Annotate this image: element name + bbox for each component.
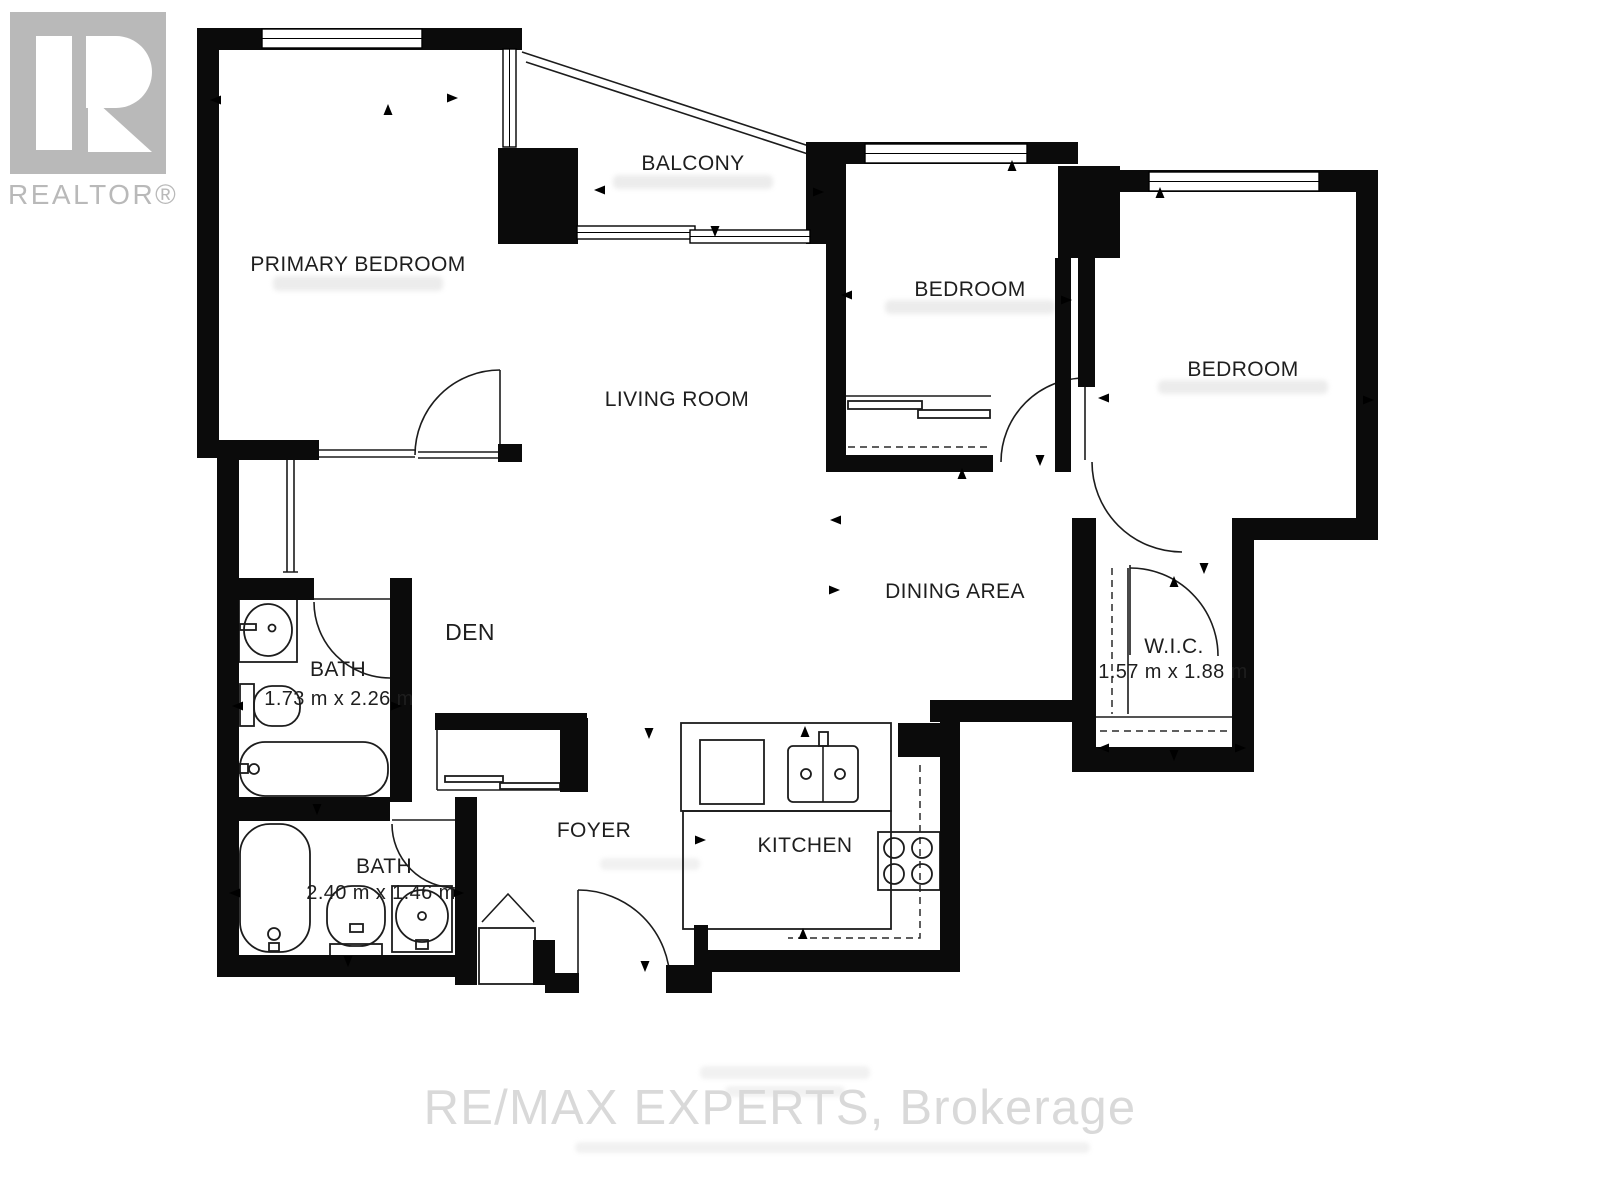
room-label-bath-main: BATH xyxy=(310,658,366,681)
bathtub xyxy=(239,742,388,796)
room-label-living-room: LIVING ROOM xyxy=(605,388,749,411)
room-label-dining-area: DINING AREA xyxy=(885,580,1025,603)
realtor-logo-text: REALTOR® xyxy=(8,179,178,210)
kitchen-sink xyxy=(788,732,858,802)
window xyxy=(1149,172,1319,191)
room-label-foyer: FOYER xyxy=(557,819,631,842)
room-label-balcony: BALCONY xyxy=(641,152,744,175)
window xyxy=(865,144,1027,163)
windows xyxy=(262,29,1319,243)
room-dimensions-bath-main: 1.73 m x 2.26 m xyxy=(264,688,413,710)
room-label-wic: W.I.C. xyxy=(1144,635,1204,658)
bedroom-1-door xyxy=(1001,378,1085,462)
room-dimensions-wic: 1.57 m x 1.88 m xyxy=(1098,661,1247,683)
entry-door xyxy=(578,890,670,985)
room-label-bedroom-1: BEDROOM xyxy=(914,278,1025,301)
room-label-den: DEN xyxy=(445,619,495,645)
kitchen-counter xyxy=(681,723,891,929)
window xyxy=(503,49,516,147)
bedroom-2-door xyxy=(1092,462,1182,552)
fixtures xyxy=(239,598,940,984)
balcony-sliding-door xyxy=(577,226,810,243)
room-label-primary-bedroom: PRIMARY BEDROOM xyxy=(250,253,465,276)
primary-bedroom-door xyxy=(415,370,500,455)
brokerage-watermark: RE/MAX EXPERTS, Brokerage xyxy=(424,1081,1137,1135)
room-label-bath-second: BATH xyxy=(356,855,412,878)
stove xyxy=(878,832,940,890)
floor-plan-canvas: PRIMARY BEDROOM BALCONY BEDROOM BEDROOM … xyxy=(0,0,1600,1200)
floor-plan-page: PRIMARY BEDROOM BALCONY BEDROOM BEDROOM … xyxy=(0,0,1600,1200)
bathtub xyxy=(240,824,310,952)
foyer-closet xyxy=(479,894,535,984)
room-dimensions-bath-second: 2.40 m x 1.46 m xyxy=(306,882,455,904)
room-label-kitchen: KITCHEN xyxy=(758,834,853,857)
realtor-logo: REALTOR® xyxy=(8,12,178,210)
room-label-bedroom-2: BEDROOM xyxy=(1187,358,1298,381)
bathroom-sink xyxy=(239,598,297,662)
window xyxy=(262,29,422,48)
